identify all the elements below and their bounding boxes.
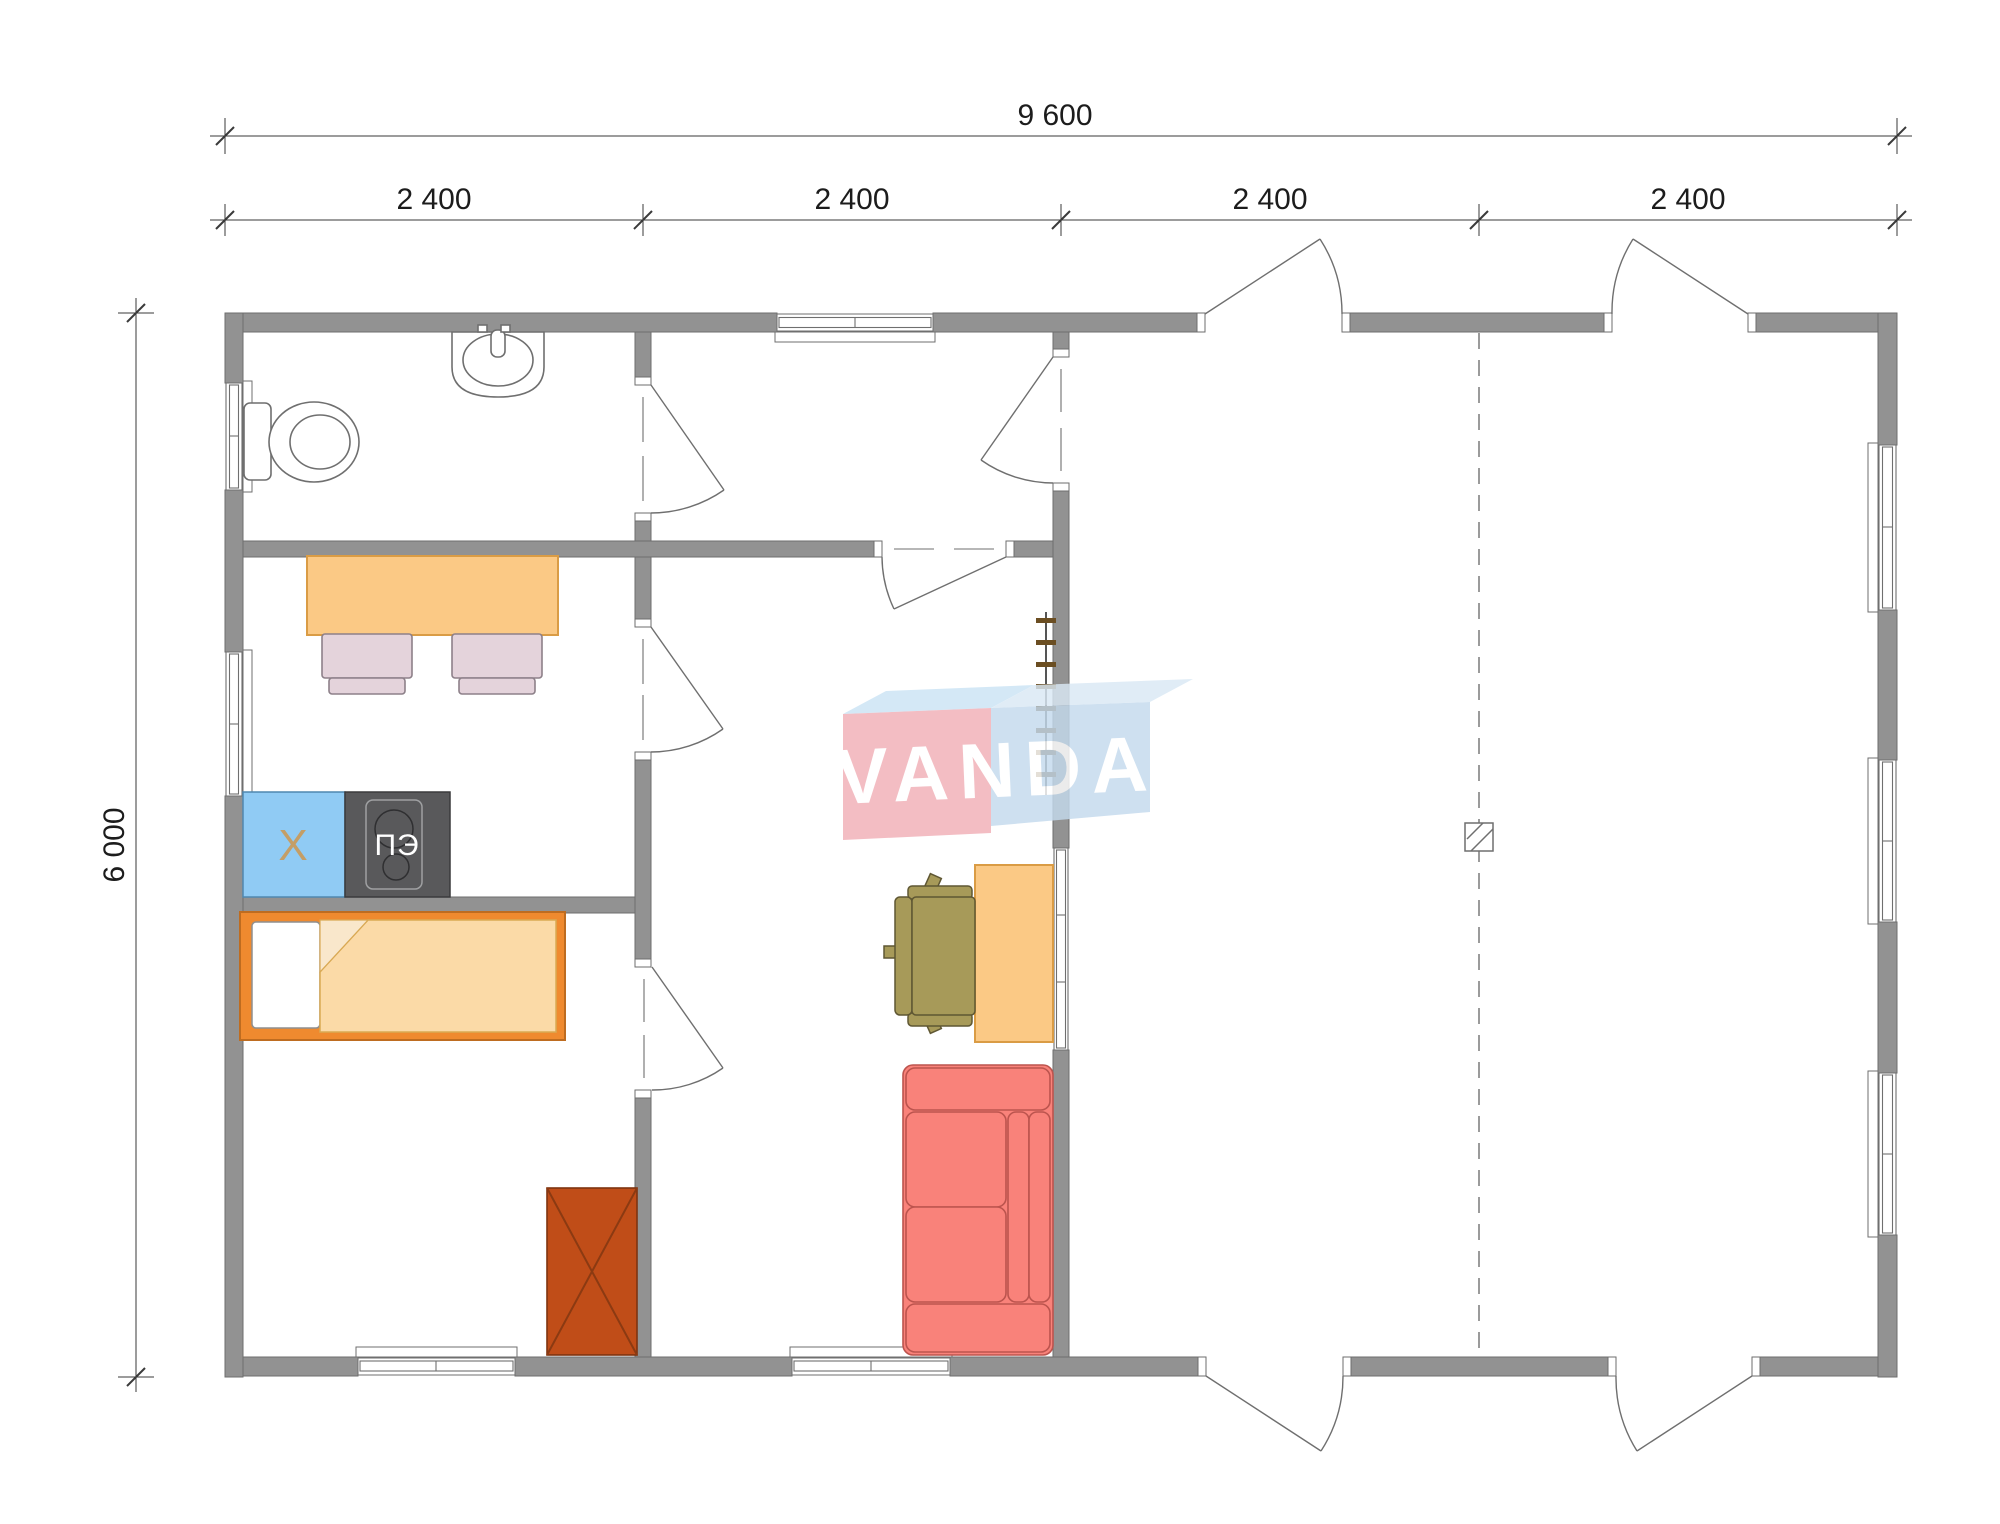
wardrobe xyxy=(547,1188,637,1355)
door-terrace-top-left xyxy=(1205,239,1342,314)
sink xyxy=(452,325,544,397)
fridge: X xyxy=(243,792,345,897)
dimension-total-width: 9 600 xyxy=(210,99,1912,154)
vanda-watermark: VANDA xyxy=(834,679,1193,840)
vanda-logo-text: VANDA xyxy=(834,719,1159,821)
column-marker xyxy=(1465,823,1493,851)
office-chair xyxy=(884,874,975,1034)
dim-label-segment-3: 2 400 xyxy=(1232,183,1307,216)
sofa xyxy=(903,1065,1053,1355)
stove-label: ПЭ xyxy=(374,829,419,862)
chair-2 xyxy=(452,634,542,694)
dimension-total-height: 6 000 xyxy=(98,298,154,1392)
door-terrace-bottom-left xyxy=(1206,1376,1343,1451)
window-right-1 xyxy=(1868,443,1896,612)
door-terrace-bottom-right xyxy=(1616,1376,1752,1451)
fridge-label: X xyxy=(278,821,307,870)
door-terrace-top-right xyxy=(1612,239,1748,314)
door-hall-terrace xyxy=(981,357,1061,483)
dim-label-total-width: 9 600 xyxy=(1017,99,1092,132)
window-left-kitchen xyxy=(226,650,252,798)
dining-table xyxy=(307,556,558,635)
dim-label-segment-4: 2 400 xyxy=(1650,183,1725,216)
door-livingroom xyxy=(882,549,1006,609)
floor-plan-canvas: 9 600 2 400 2 400 2 400 2 400 6 000 xyxy=(0,0,2000,1524)
window-interior-terrace xyxy=(1054,848,1068,1050)
desk xyxy=(975,865,1053,1042)
stove: ПЭ xyxy=(345,792,450,897)
window-right-3 xyxy=(1868,1071,1896,1237)
door-jambs xyxy=(635,313,1760,1376)
window-top xyxy=(775,314,935,342)
dim-label-segment-2: 2 400 xyxy=(814,183,889,216)
door-bedroom xyxy=(644,967,723,1090)
dim-label-total-height: 6 000 xyxy=(98,807,131,882)
toilet xyxy=(244,402,359,482)
dimension-width-segments: 2 400 2 400 2 400 2 400 xyxy=(210,183,1912,236)
dim-label-segment-1: 2 400 xyxy=(396,183,471,216)
window-bottom-bedroom xyxy=(356,1347,517,1375)
window-right-2 xyxy=(1868,758,1896,924)
door-kitchen xyxy=(643,627,723,752)
door-bathroom xyxy=(643,385,724,513)
chair-1 xyxy=(322,634,412,694)
bed xyxy=(240,912,565,1040)
